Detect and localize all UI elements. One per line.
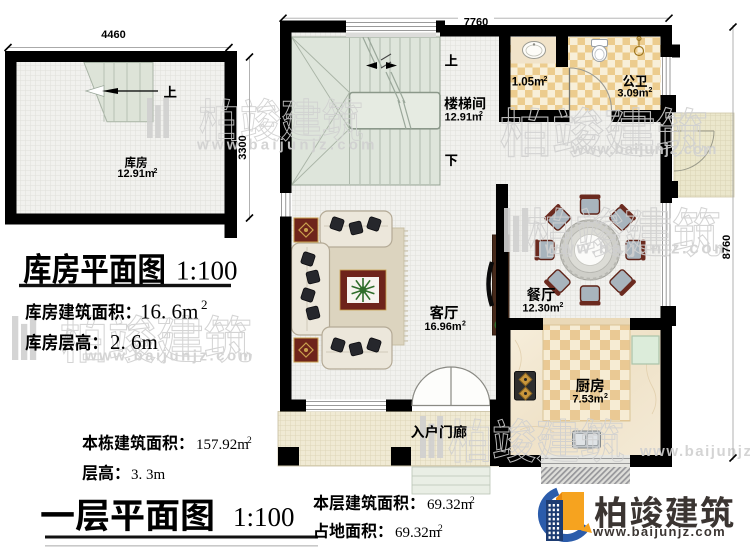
svg-text:2: 2 <box>604 393 608 400</box>
svg-text:2: 2 <box>479 111 483 118</box>
svg-text:2: 2 <box>201 297 208 312</box>
svg-text:2: 2 <box>438 524 443 534</box>
svg-text:157.92m: 157.92m <box>196 437 249 453</box>
svg-text:2: 2 <box>470 496 475 506</box>
svg-text:2: 2 <box>544 76 548 83</box>
svg-text:2: 2 <box>462 321 466 328</box>
svg-text:2: 2 <box>247 436 252 446</box>
svg-text:2: 2 <box>649 87 653 94</box>
svg-text:8760: 8760 <box>721 235 733 259</box>
svg-text:3.09m: 3.09m <box>617 88 648 100</box>
svg-text:1.05m: 1.05m <box>512 77 545 89</box>
svg-text:12.91m: 12.91m <box>117 168 155 180</box>
svg-text:3300: 3300 <box>237 135 249 159</box>
svg-text:7.53m: 7.53m <box>572 394 603 406</box>
svg-text:69.32m: 69.32m <box>427 497 473 513</box>
svg-text:1:100: 1:100 <box>176 256 238 286</box>
svg-text:2. 6m: 2. 6m <box>110 330 158 354</box>
svg-text:1:100: 1:100 <box>233 502 295 532</box>
svg-text:www.baijunjz.com: www.baijunjz.com <box>196 137 378 154</box>
svg-text:www.baijunjz.com: www.baijunjz.com <box>592 524 726 539</box>
svg-text:12.91m: 12.91m <box>445 112 483 124</box>
svg-text:www.baijunjz.com: www.baijunjz.com <box>571 141 717 158</box>
svg-text:2: 2 <box>154 168 158 175</box>
svg-text:16.96m: 16.96m <box>424 321 462 333</box>
svg-text:www.baijunjz.com: www.baijunjz.com <box>544 239 732 258</box>
svg-text:4460: 4460 <box>101 29 125 41</box>
svg-text:16. 6m: 16. 6m <box>140 300 198 324</box>
svg-text:7760: 7760 <box>464 17 488 29</box>
svg-text:3. 3m: 3. 3m <box>131 467 166 483</box>
svg-text:69.32m: 69.32m <box>395 525 441 541</box>
svg-text:2: 2 <box>560 302 564 309</box>
svg-text:12.30m: 12.30m <box>522 303 560 315</box>
